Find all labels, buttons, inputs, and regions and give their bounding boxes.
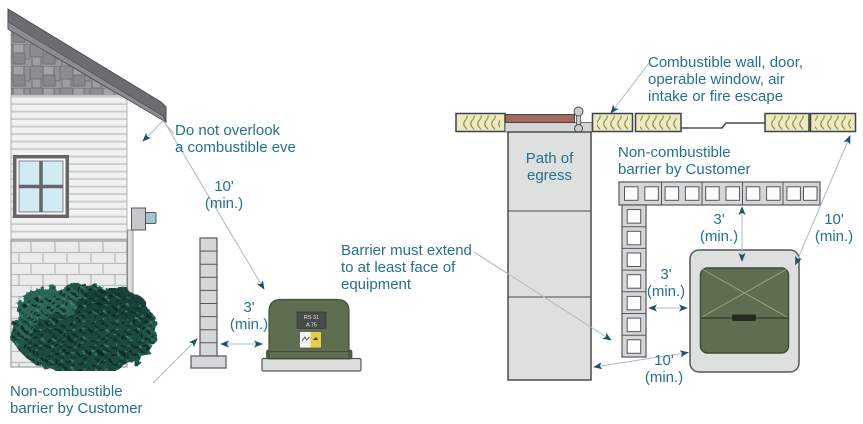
transformer-pad bbox=[262, 359, 361, 372]
warning-sticker bbox=[300, 332, 322, 349]
barrier-footing bbox=[191, 356, 226, 368]
extend-note-label: Barrier must extend to at least face of … bbox=[341, 242, 472, 293]
house bbox=[8, 9, 166, 375]
plan-barrier-row bbox=[619, 182, 820, 205]
meter-box bbox=[132, 208, 157, 230]
barrier-callout-leader bbox=[153, 339, 197, 383]
barrier-note-right-label: Non-combustible barrier by Customer bbox=[618, 144, 751, 178]
transformer-nameplate: RS 31 A 75 bbox=[297, 312, 326, 329]
three-ft-min-top-label: 3' (min.) bbox=[691, 211, 747, 245]
equipment-handle bbox=[732, 315, 756, 322]
transformer-body bbox=[269, 300, 349, 359]
operable-window-open bbox=[681, 123, 765, 128]
three-ft-min-side-label: 3' (min.) bbox=[638, 266, 694, 300]
plate-line1: RS 31 bbox=[304, 315, 319, 321]
three-ft-min-left-label: 3' (min.) bbox=[221, 299, 277, 333]
plate-line2: A 75 bbox=[306, 323, 317, 329]
barrier-note-left-label: Non-combustible barrier by Customer bbox=[10, 383, 143, 417]
door-pivot bbox=[574, 107, 583, 133]
combustible-wall-plan bbox=[456, 107, 856, 133]
ten-ft-min-right-label: 10' (min.) bbox=[804, 211, 863, 245]
window bbox=[13, 155, 69, 218]
ten-ft-min-left-label: 10' (min.) bbox=[196, 178, 252, 212]
equipment-plan-view bbox=[690, 250, 799, 372]
combustible-wall-note-label: Combustible wall, door, operable window,… bbox=[648, 54, 803, 105]
eve-note-label: Do not overlook a combustible eve bbox=[175, 122, 296, 156]
clearance-requirements-diagram: RS 31 A 75 bbox=[0, 0, 863, 424]
bush bbox=[11, 285, 157, 375]
door-panel bbox=[506, 115, 575, 123]
path-of-egress-label: Path of egress bbox=[508, 150, 591, 184]
ten-ft-min-bottom-label: 10' (min.) bbox=[634, 352, 694, 386]
wall-callout-leader bbox=[611, 63, 649, 113]
